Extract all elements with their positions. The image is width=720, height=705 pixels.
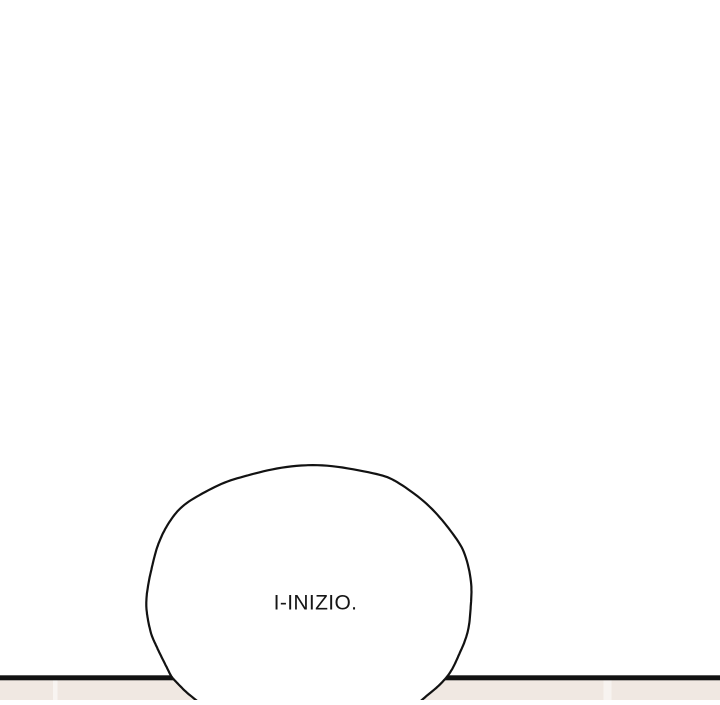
svg-text:I-INIZIO.: I-INIZIO. — [274, 591, 358, 614]
